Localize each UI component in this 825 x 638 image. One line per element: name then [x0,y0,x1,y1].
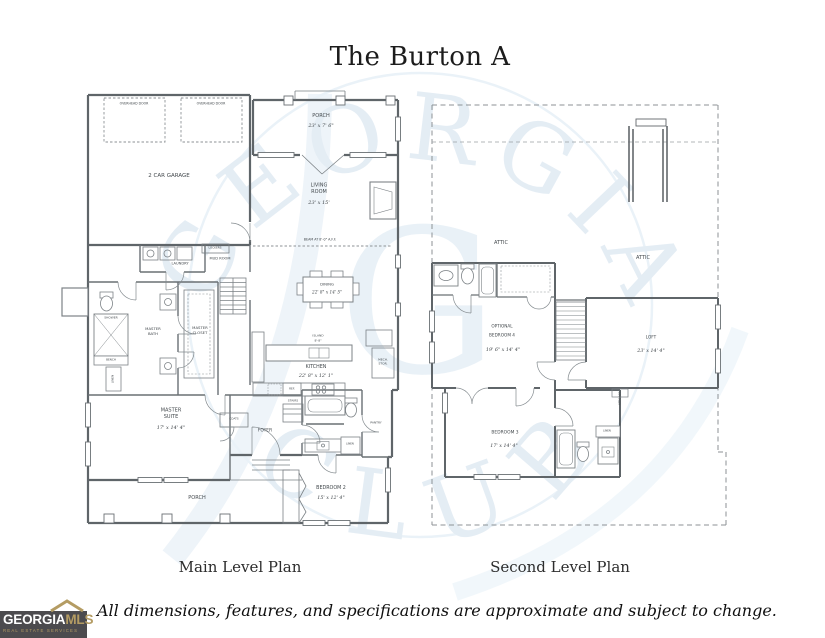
kitchen-dims: 22' 8" x 12' 1" [299,373,333,379]
logo-mls: MLS [65,612,93,627]
living-room-dims: 23' x 15' [308,200,329,206]
master-suite-label: MASTER SUITE [160,408,183,421]
main-level-caption: Main Level Plan [155,558,325,576]
linen-hall-label: LINEN [346,442,354,445]
loft-dims: 23' x 14' 4" [637,348,664,354]
coats-label: COATS [229,417,238,421]
bedroom3-label: BEDROOM 3 [491,430,518,436]
mech-storage-label: MECH. STOR. [377,358,388,366]
attic-left-label: ATTIC [494,240,508,246]
master-closet-label: MASTER CLOSET [191,326,208,336]
master-suite-dims: 17' x 14' 4" [157,425,186,431]
overhead-door-left-label: OVERHEAD DOOR [120,102,149,106]
porch-bottom-label: PORCH [188,495,205,501]
beam-note: BEAM AT 8'-0" A.F.F. [304,238,337,242]
kitchen-label: KITCHEN [306,364,327,370]
bedroom4-dims: 19' 6" x 14' 4" [486,347,520,353]
bedroom2-dims: 15' x 12' 4" [317,495,344,501]
disclaimer-text: All dimensions, features, and specificat… [97,601,777,620]
laundry-label: LAUNDRY [171,262,188,267]
floor-plan-drawing: GEORGIA CLUB G [0,0,825,638]
logo-georgia: GEORGIA [3,612,65,627]
bedroom3-dims: 17' x 14' 4" [490,443,517,449]
shower-label: SHOWER [104,316,117,320]
bedroom4-label: BEDROOM 4 [489,333,515,338]
second-level-caption: Second Level Plan [475,558,645,576]
linen-second-label: LINEN [603,429,611,432]
porch-top-dims: 23' x 7' 6" [308,123,333,129]
floor-plan-sheet: GEORGIA CLUB G [0,0,825,638]
roof-icon [48,598,86,613]
refrigerator-label: REF. [289,387,295,391]
dining-label: DINING [320,283,334,288]
logo-tagline: REAL ESTATE SERVICES [3,628,87,633]
lockers-label: LOCKERS [209,246,222,250]
overhead-door-right-label: OVERHEAD DOOR [197,102,226,106]
dining-dims: 22' 8" x 14' 5" [312,290,342,295]
georgia-mls-logo: GEORGIAMLS REAL ESTATE SERVICES [0,611,87,638]
bedroom2-label: BEDROOM 2 [316,485,346,491]
island-dims: 8'-8" [314,339,321,343]
master-bath-label: MASTER BATH [145,327,162,337]
watermark-monogram: G [338,187,498,420]
mud-room-label: MUD ROOM [210,257,231,262]
loft-label: LOFT [646,335,656,340]
page-title: The Burton A [0,42,825,72]
attic-right-label: ATTIC [636,255,650,261]
stairs-label: STAIRS [288,399,298,403]
attic-access-label: ATTIC ACC. [618,391,621,405]
logo-wordmark: GEORGIAMLS [3,613,87,626]
pantry-label: PANTRY [370,421,381,425]
bedroom4-optional-label: OPTIONAL [491,324,512,329]
porch-top-label: PORCH [312,113,329,119]
living-room-label: LIVING ROOM [308,183,331,196]
foyer-label: FOYER [258,428,272,434]
island-label: ISLAND [312,334,323,338]
bench-label: BENCH [106,358,116,362]
linen-master-label: LINEN [111,375,115,383]
garage-label: 2 CAR GARAGE [148,172,189,179]
